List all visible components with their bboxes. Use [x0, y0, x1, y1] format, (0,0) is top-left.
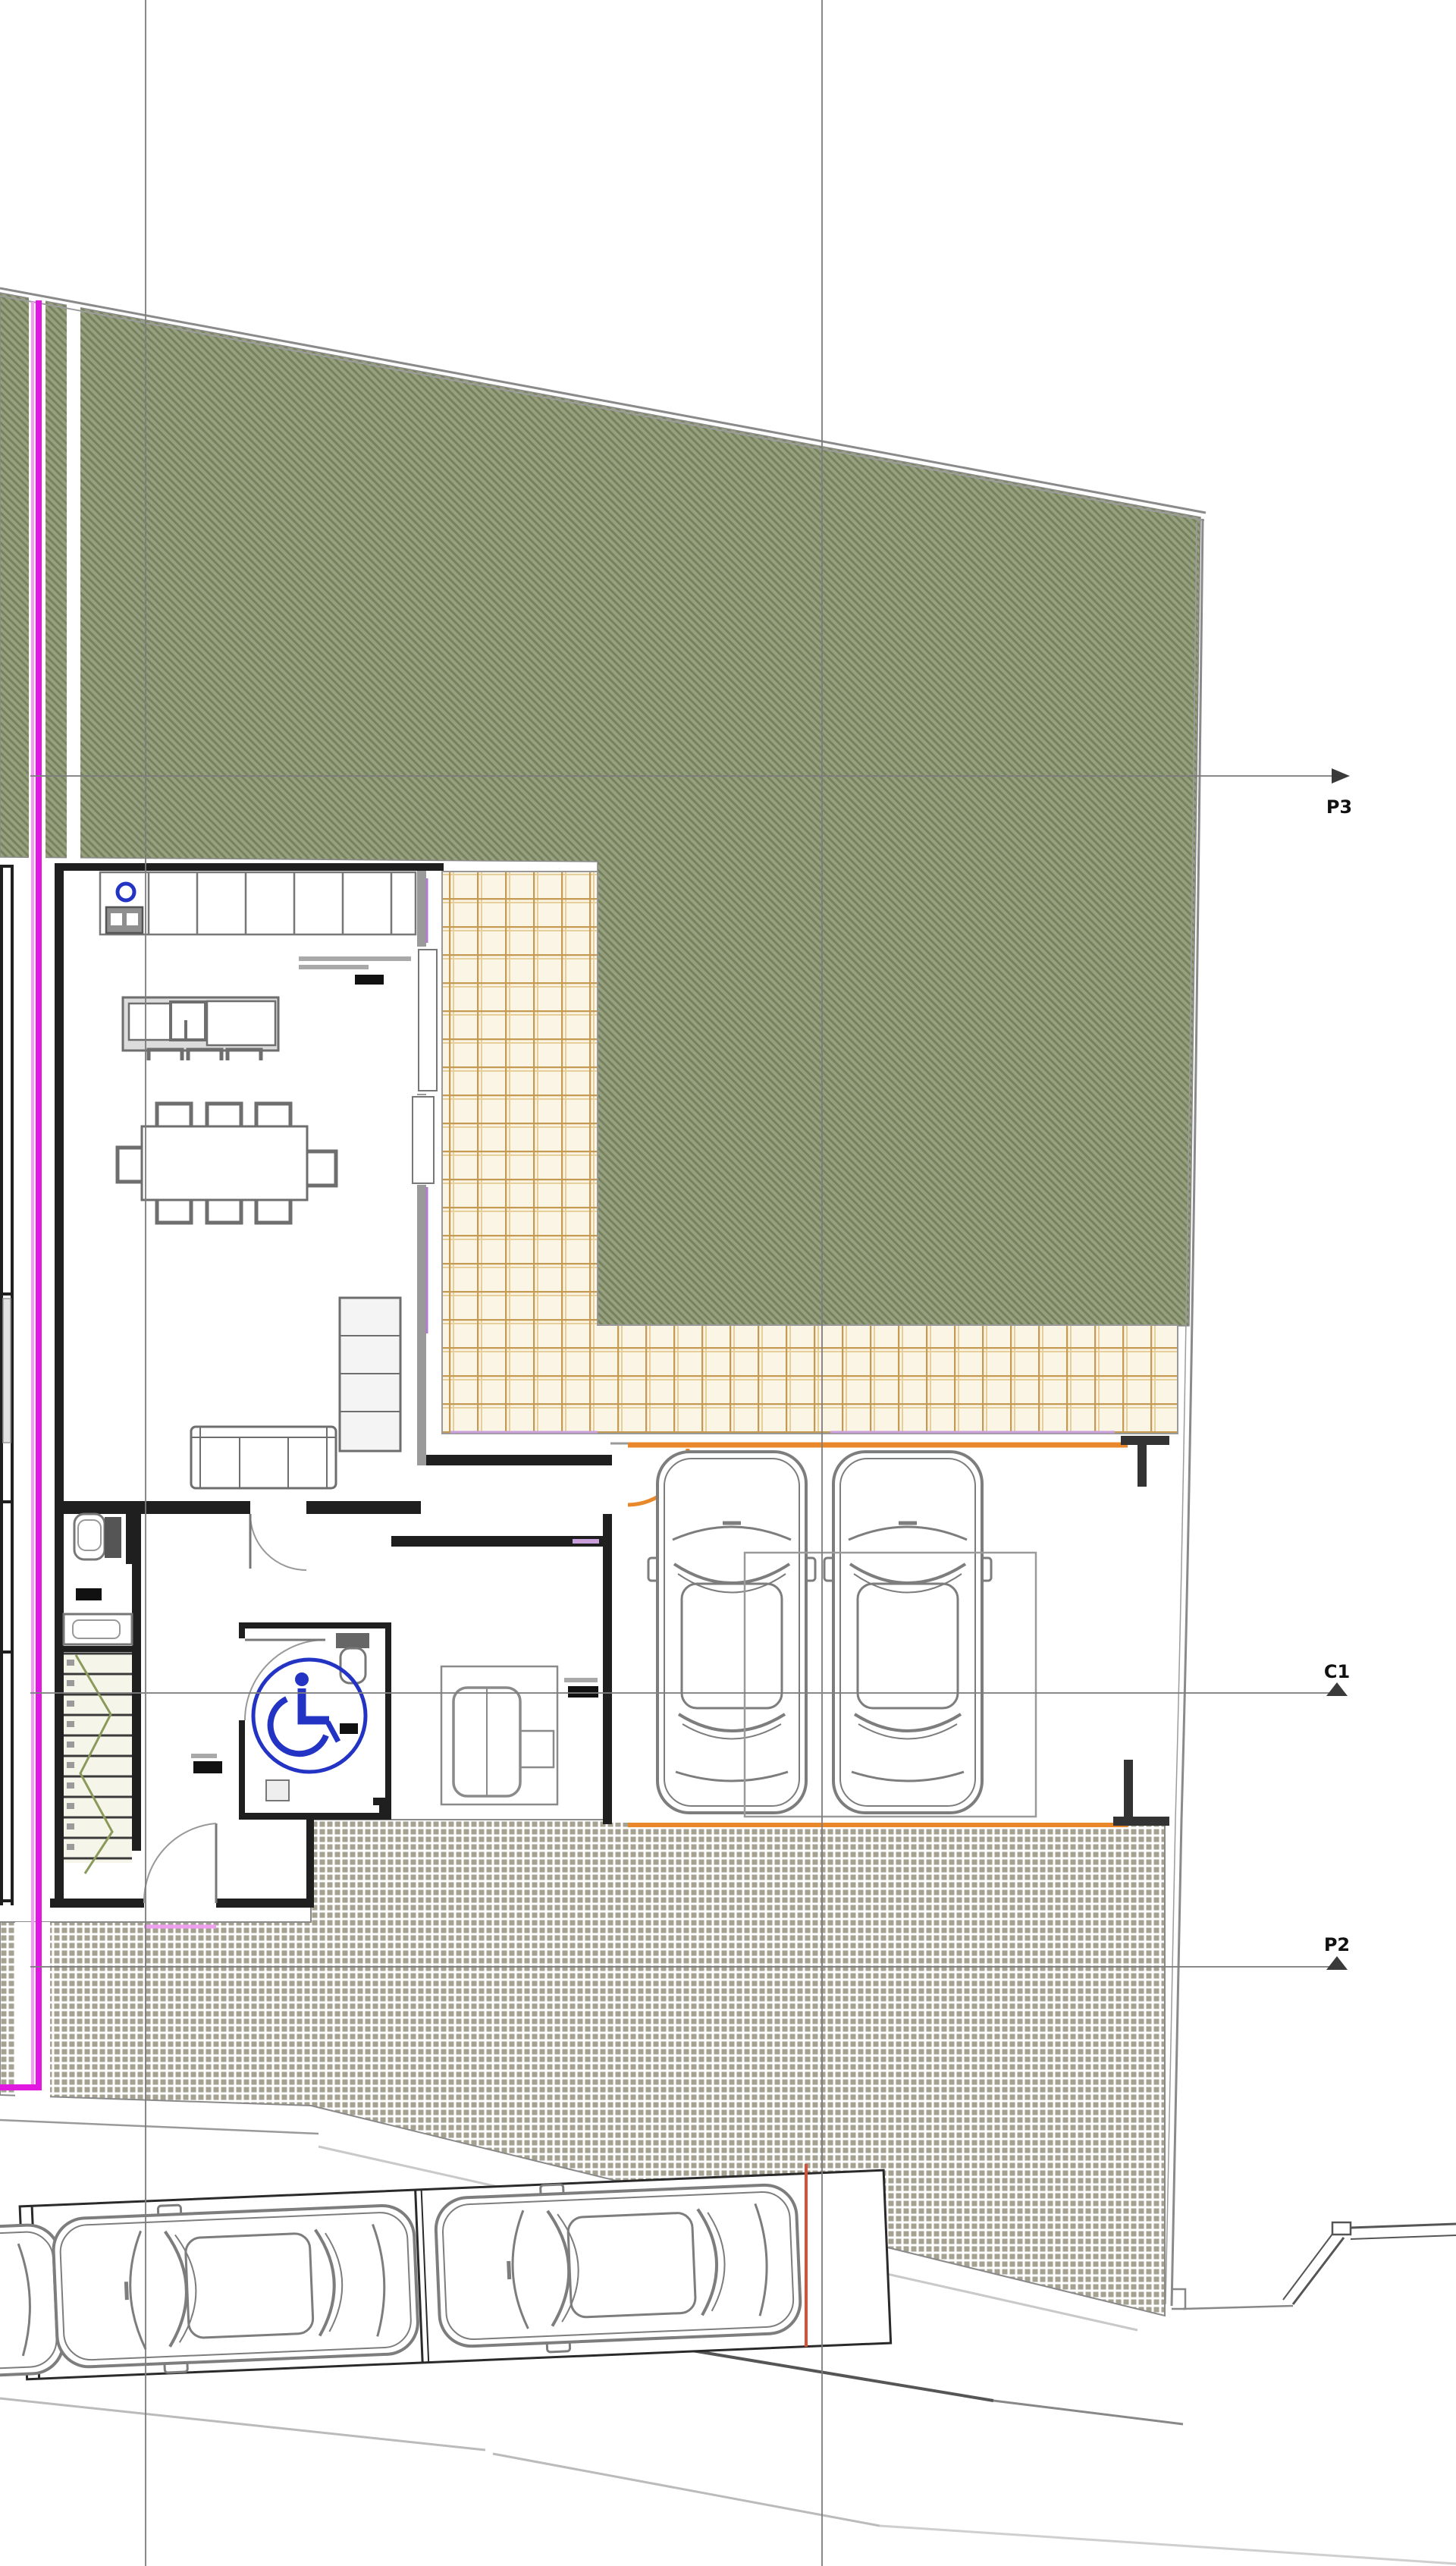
- label-blob-living: [355, 975, 384, 985]
- site-plan-canvas: P3 C1 P2: [0, 0, 1456, 2566]
- boundary-channel-2: [67, 302, 80, 859]
- label-blob-equipment: [568, 1686, 598, 1698]
- wall-wc-top: [239, 1622, 391, 1628]
- wall-living-south: [55, 1501, 421, 1514]
- site-plan-drawing: P3 C1 P2: [0, 0, 1456, 2566]
- entrance-door: [144, 1823, 216, 1927]
- annotation-line: [564, 1678, 598, 1682]
- street: [0, 2120, 1456, 2564]
- wall-front-right: [216, 1899, 312, 1908]
- door-swing-arc: [144, 1823, 216, 1903]
- wall-garage-left: [603, 1514, 612, 1824]
- sliding-door-panel: [419, 950, 437, 1091]
- wheelchair-symbol: [253, 1660, 366, 1772]
- street-car-2: [435, 2175, 802, 2357]
- wall-stair-strip: [132, 1514, 141, 1851]
- axis-label-C1: C1: [1324, 1661, 1350, 1682]
- toilet-tank: [336, 1633, 369, 1648]
- neighbour-furniture: [3, 1299, 11, 1443]
- neighbour-building: [0, 865, 14, 1905]
- washbasin-counter: [64, 1614, 132, 1644]
- grid-labels: P3 C1 P2: [1324, 796, 1352, 1955]
- street-car-1: [52, 2195, 419, 2377]
- accessible-wc: [239, 1633, 369, 1801]
- carport-car-1: [648, 1452, 815, 1813]
- carport-car-2: [824, 1452, 991, 1813]
- washbasin: [266, 1780, 289, 1801]
- wall-wc-right: [385, 1627, 391, 1813]
- wall-wc-bottom: [239, 1813, 391, 1820]
- dining-table: [142, 1126, 307, 1200]
- wall-front-step: [306, 1820, 314, 1908]
- annotation-line: [299, 956, 411, 961]
- wall-top: [55, 863, 444, 871]
- wall-stairs-top: [55, 1646, 140, 1652]
- door-arc-hall: [250, 1514, 306, 1570]
- duct-shaft: [126, 1503, 141, 1564]
- arrow-P2: [1326, 1956, 1348, 1970]
- wall-garage-front: [417, 1455, 612, 1465]
- sliding-door-panel: [413, 1097, 434, 1183]
- grid-arrows: [1326, 768, 1350, 1970]
- service-wc: [64, 1514, 132, 1644]
- annotation-line: [299, 965, 369, 969]
- sofa: [191, 1427, 336, 1488]
- kerb-ramp: [1172, 2222, 1456, 2309]
- wall-front-left: [50, 1899, 144, 1908]
- annotation-line: [191, 1754, 217, 1758]
- arrow-P3: [1332, 768, 1350, 784]
- arrow-C1: [1326, 1682, 1348, 1696]
- kitchen-counter: [100, 872, 416, 934]
- toilet-tank: [105, 1517, 121, 1558]
- equipment-room: [441, 1541, 599, 1804]
- island-sink: [171, 1002, 206, 1040]
- sink-symbol-blue: [118, 884, 134, 900]
- label-blob-hall: [193, 1761, 222, 1773]
- sidewalk-line: [0, 2120, 318, 2134]
- wall-nub2: [379, 1804, 385, 1820]
- axis-label-P3: P3: [1326, 796, 1352, 818]
- label-blob-wc: [340, 1723, 358, 1734]
- door-swing-arc: [245, 1640, 325, 1720]
- label-blob-service-wc: [76, 1588, 102, 1600]
- wall-left: [55, 863, 64, 1905]
- axis-label-P2: P2: [1324, 1934, 1350, 1955]
- staircase: [64, 1654, 132, 1873]
